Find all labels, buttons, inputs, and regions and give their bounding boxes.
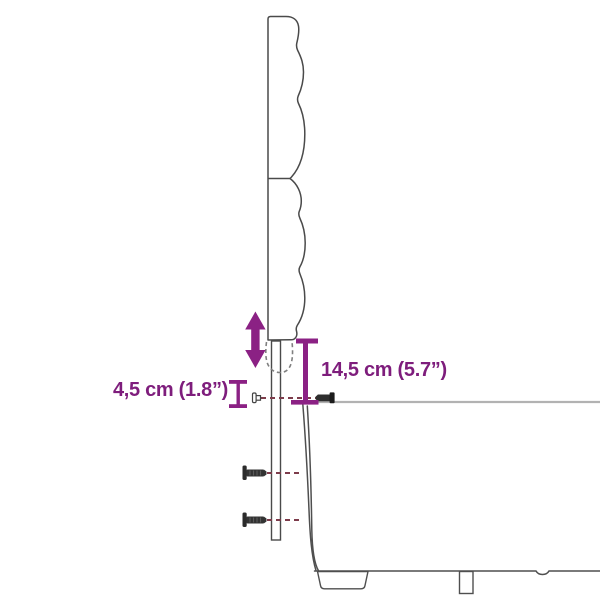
base-corner-seam bbox=[307, 406, 318, 571]
measure-bar-14-5 bbox=[291, 339, 319, 405]
mounting-drop-label: 14,5 cm (5.7”) bbox=[321, 359, 447, 382]
measure-bracket-4-5 bbox=[229, 380, 247, 408]
up-down-arrow-icon bbox=[245, 312, 265, 369]
headboard-profile bbox=[268, 17, 305, 341]
base-rear-leg bbox=[460, 572, 474, 594]
adjustment-range-label: 4,5 cm (1.8”) bbox=[96, 379, 228, 402]
screw-icon bbox=[243, 466, 267, 481]
pin-icon bbox=[253, 393, 261, 403]
base-front-edge bbox=[303, 404, 316, 571]
screw-icon bbox=[243, 513, 267, 528]
diagram-canvas: 4,5 cm (1.8”) 14,5 cm (5.7”) bbox=[0, 0, 600, 600]
bed-base bbox=[303, 404, 600, 575]
bed-diagram-art bbox=[0, 0, 600, 600]
base-front-leg bbox=[318, 572, 369, 589]
